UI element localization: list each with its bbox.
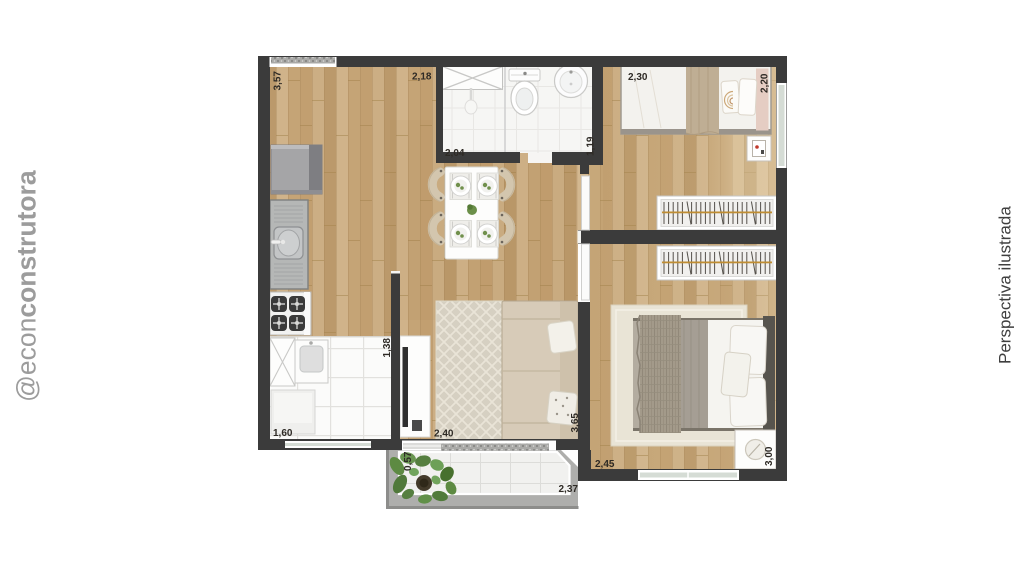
svg-text:@econconstrutora: @econconstrutora [12,170,42,402]
svg-text:2,30: 2,30 [628,72,648,83]
svg-text:2,20: 2,20 [760,73,771,93]
svg-text:1,38: 1,38 [382,338,393,358]
svg-text:2,04: 2,04 [445,148,465,159]
svg-text:1,60: 1,60 [273,428,293,439]
svg-text:2,40: 2,40 [434,429,454,440]
svg-text:Perspectiva ilustrada: Perspectiva ilustrada [996,206,1015,364]
svg-text:2,18: 2,18 [412,72,432,83]
svg-text:3,00: 3,00 [764,446,775,466]
svg-text:0,57: 0,57 [403,451,414,471]
svg-text:2,37: 2,37 [559,484,579,495]
svg-text:3,57: 3,57 [273,71,284,91]
svg-text:2,45: 2,45 [595,459,615,470]
svg-text:1,19: 1,19 [586,136,597,156]
svg-text:3,65: 3,65 [570,413,581,433]
